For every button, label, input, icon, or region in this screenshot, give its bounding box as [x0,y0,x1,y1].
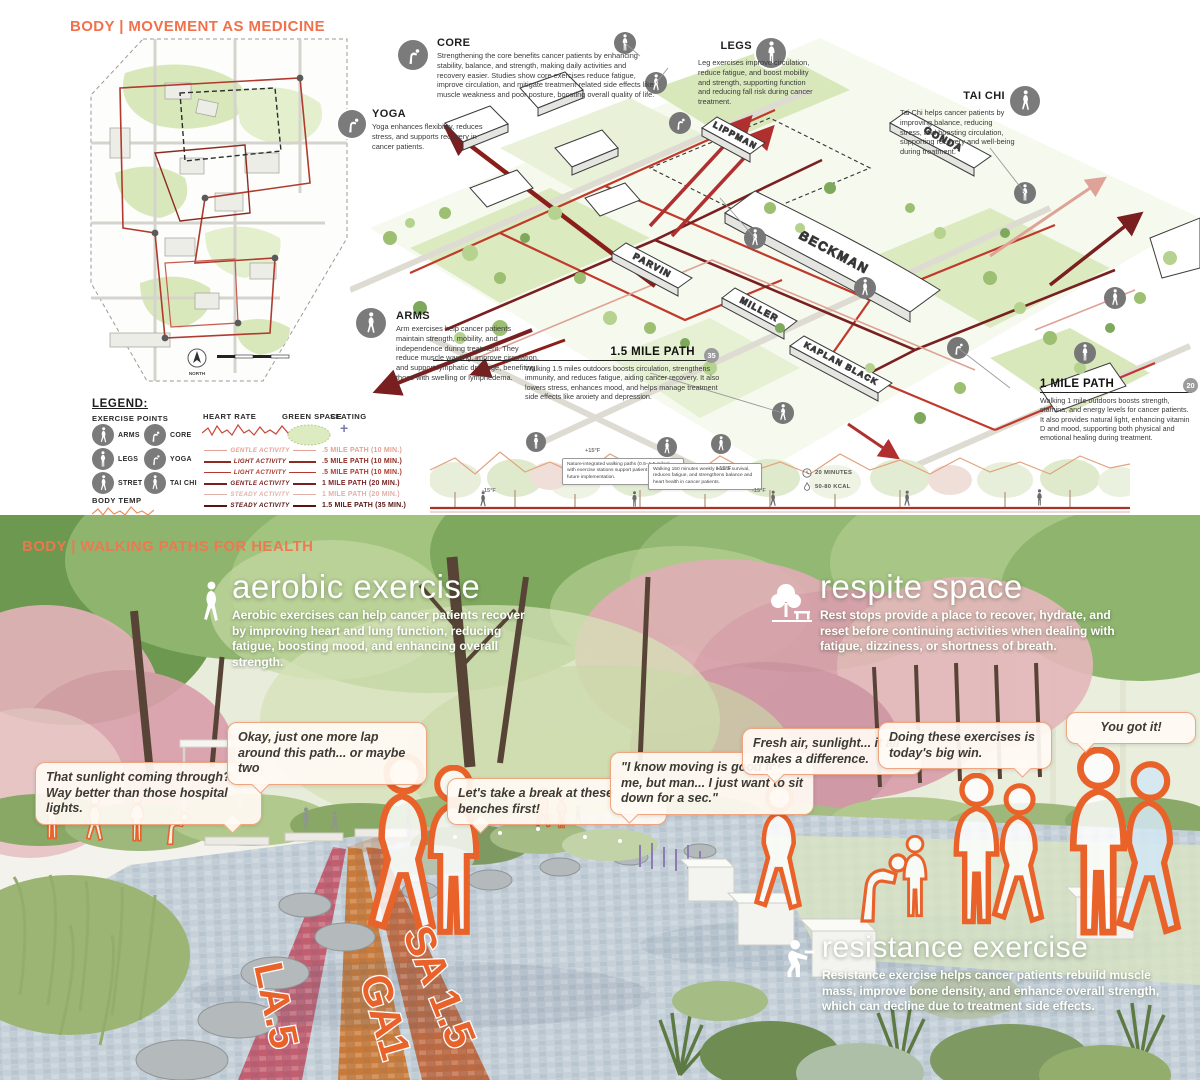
arms-icon [356,308,386,338]
legend-heading: LEGEND: [92,398,490,410]
core-icon [144,424,166,446]
temp-label: -15°F [752,488,766,494]
north-arrow: NORTH [188,349,206,376]
feature-aerobic: aerobic exercise Aerobic exercises can h… [232,570,542,670]
speech-bubble: Doing these exercises is today's big win… [878,722,1052,769]
section-trees [430,459,1130,499]
walking-person-icon [198,581,224,630]
walking-paths-render: BODY | WALKING PATHS FOR HEALTH aerobic … [0,515,1200,1080]
callout-tai-chi-text: Tai Chi helps cancer patients by improvi… [900,108,1016,157]
speech-bubble: You got it! [1066,712,1196,744]
callout-yoga: YOGA Yoga enhances flexibility, reduces … [372,108,496,151]
green-space-swatch [286,423,332,447]
site-section-strip: Nature-integrated walking paths (0.5–1.5… [430,428,1130,515]
callout-yoga-title: YOGA [372,108,496,120]
feature-aerobic-text: Aerobic exercises can help cancer patien… [232,608,542,670]
legend-body-temp-label: BODY TEMP [92,496,142,505]
callout-yoga-text: Yoga enhances flexibility, reduces stres… [372,122,496,151]
legend-point-tai-chi: TAI CHI [144,472,197,494]
yoga-icon [144,448,166,470]
callout-core-title: CORE [437,37,655,49]
legend-seating-label: SEATING [330,412,367,421]
seating-swatch: + [340,420,348,436]
tree-bench-icon [766,581,814,630]
duration-stat: 20 MINUTES [802,468,852,478]
speech-bubble: Okay, just one more lap around this path… [227,722,427,785]
yoga-icon [338,110,366,138]
path-1-5-text: Walking 1.5 miles outdoors boosts circul… [525,364,721,401]
arms-icon [92,424,114,446]
feature-respite-title: respite space [820,570,1130,603]
scale-bar [217,355,289,358]
movement-as-medicine-panel: BODY | MOVEMENT AS MEDICINE [0,0,1200,515]
callout-legs-text: Leg exercises improve circulation, reduc… [698,58,820,107]
flame-icon [802,482,812,492]
legend-point-arms: ARMS [92,424,140,446]
callout-core: CORE Strengthening the core benefits can… [437,37,655,100]
callout-legs-title-wrap: LEGS [698,40,752,52]
temp-label: -15°F [482,488,496,494]
feature-aerobic-title: aerobic exercise [232,570,542,603]
temp-label: +15°F [585,448,600,454]
section-note-2: Walking 150 minutes weekly boosts surviv… [648,463,762,490]
callout-legs: Leg exercises improve circulation, reduc… [698,56,820,107]
heart-rate-line [202,422,298,438]
tai-chi-icon [144,472,166,494]
feature-respite-text: Rest stops provide a place to recover, h… [820,608,1130,655]
feature-respite: respite space Rest stops provide a place… [820,570,1130,655]
clock-icon [802,468,812,478]
legs-icon [92,448,114,470]
section-sketch [430,428,1130,515]
callout-tai-chi-title-wrap: TAI CHI [900,90,1005,102]
feature-resistance-text: Resistance exercise helps cancer patient… [822,968,1162,1015]
squat-person-icon [780,939,818,986]
path-1-5-badge: 35 [704,348,719,363]
feature-resistance-title: resistance exercise [822,933,1162,963]
legend-point-core: CORE [144,424,191,446]
temp-label: +15°F [716,466,731,472]
callout-legs-title: LEGS [698,40,752,52]
presentation-board: BODY | MOVEMENT AS MEDICINE [0,0,1200,1080]
site-plan-map: NORTH [85,33,350,395]
legend-point-legs: LEGS [92,448,138,470]
legend-exercise-points-label: EXERCISE POINTS [92,414,168,423]
path-1-5-title: 1.5 MILE PATH [433,346,715,361]
svg-text:NORTH: NORTH [189,371,206,376]
core-icon [398,40,428,70]
path-1-title: 1 MILE PATH [1040,378,1192,393]
callout-path-1-5: 1.5 MILE PATH 35 Walking 1.5 miles outdo… [433,346,715,401]
stretch-icon [92,472,114,494]
body-temp-line [92,505,154,515]
callout-tai-chi: Tai Chi helps cancer patients by improvi… [900,106,1016,157]
path-1-badge: 20 [1183,378,1198,393]
bottom-panel-title: BODY | WALKING PATHS FOR HEALTH [22,538,313,555]
callout-core-text: Strengthening the core benefits cancer p… [437,51,655,100]
legend-heart-rate-label: HEART RATE [203,412,256,421]
calories-stat: 50-80 KCAL [802,482,851,492]
section-exercise-icons [526,432,731,457]
feature-resistance: resistance exercise Resistance exercise … [822,933,1162,1015]
callout-tai-chi-title: TAI CHI [900,90,1005,102]
legend-point-yoga: YOGA [144,448,192,470]
callout-arms-title: ARMS [396,310,540,322]
